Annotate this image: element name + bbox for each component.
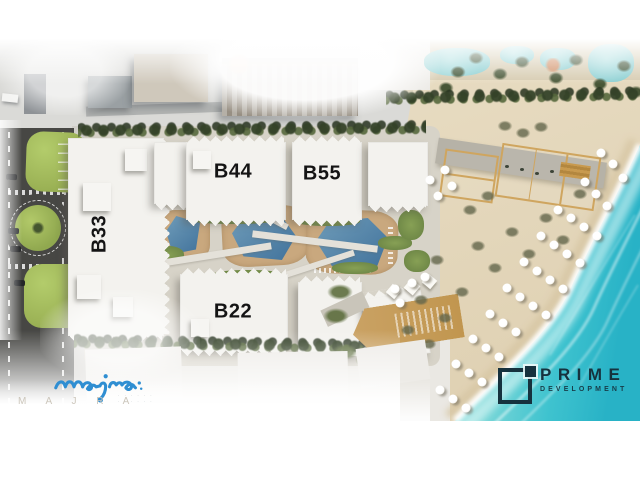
prime-square-notch: [525, 366, 536, 377]
majra-tagline: · · · · · · · · · · · ·: [118, 393, 154, 405]
masterplan-render: B33B44B55B22 majra M A J R A: [0, 0, 640, 421]
bottom-white-margin: [0, 421, 640, 480]
building-label-b44: B44: [214, 161, 252, 184]
majra-tagline-line: · · · · · ·: [118, 399, 154, 405]
prime-name: PRIME: [540, 366, 627, 384]
prime-subtitle: DEVELOPMENT: [540, 386, 627, 393]
prime-development-logo: PRIME DEVELOPMENT: [498, 366, 627, 404]
building-label-b22: B22: [214, 301, 252, 324]
prime-logo-text: PRIME DEVELOPMENT: [540, 366, 627, 393]
majra-logo: majra M A J R A · · · · · · · · · · · ·: [18, 360, 188, 416]
building-label-b55: B55: [303, 163, 341, 186]
masterplan-screenshot: B33B44B55B22 majra M A J R A: [0, 0, 640, 480]
building-labels-layer: B33B44B55B22: [0, 0, 640, 421]
prime-square-icon: [498, 368, 532, 404]
building-label-b33: B33: [89, 215, 112, 253]
